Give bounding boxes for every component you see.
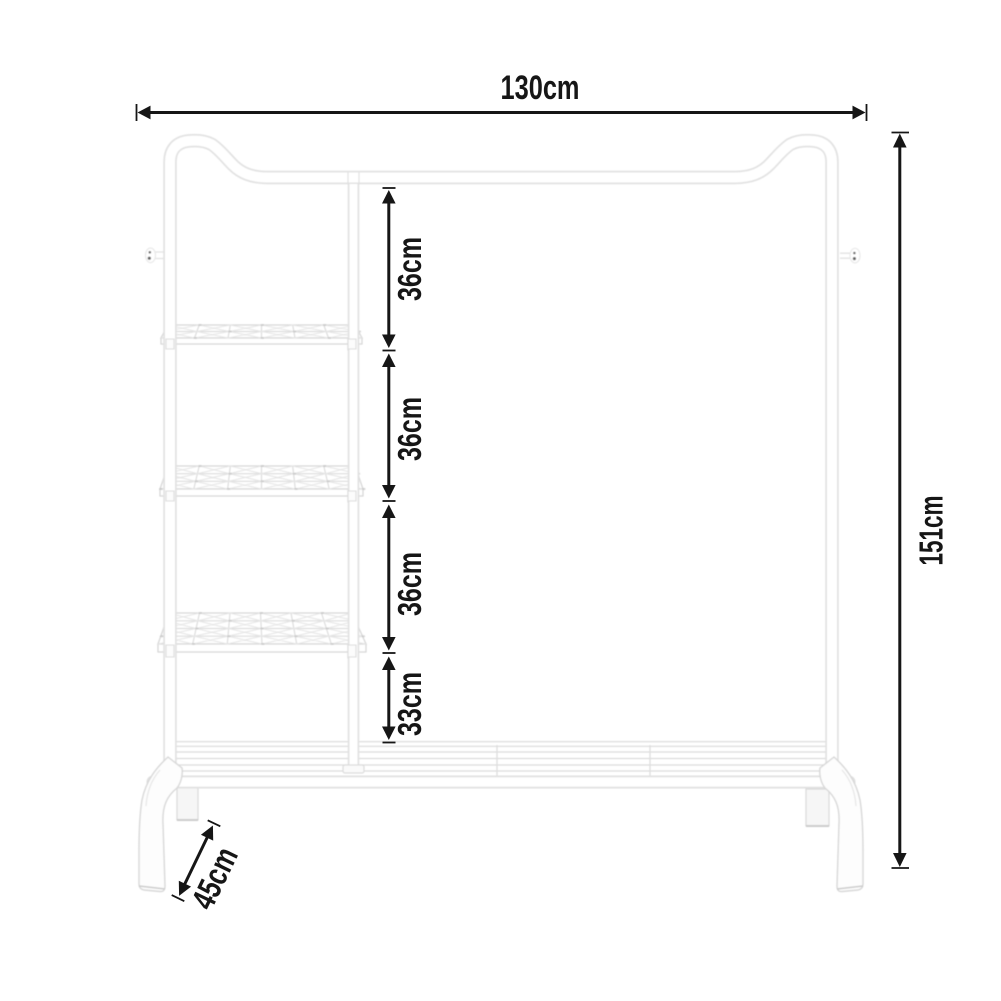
svg-text:130cm: 130cm xyxy=(501,69,580,107)
svg-text:36cm: 36cm xyxy=(391,552,428,616)
svg-text:151cm: 151cm xyxy=(913,496,950,566)
svg-text:33cm: 33cm xyxy=(391,672,428,736)
svg-text:36cm: 36cm xyxy=(391,397,428,461)
svg-text:36cm: 36cm xyxy=(391,237,428,301)
